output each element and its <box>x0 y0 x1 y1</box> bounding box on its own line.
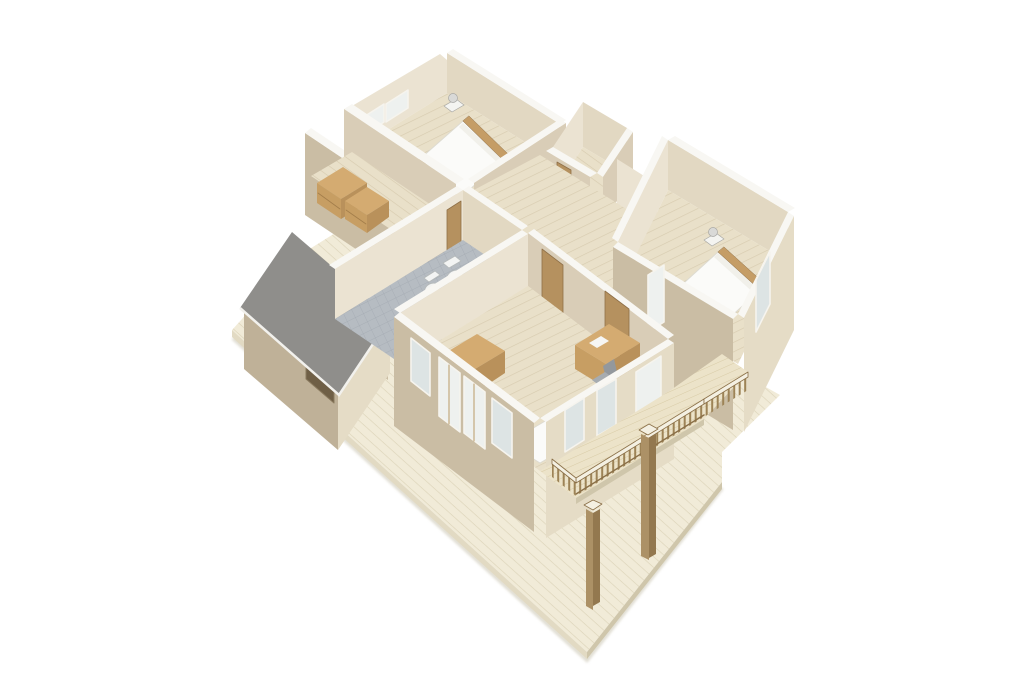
post-front <box>586 509 593 610</box>
post-side <box>649 434 656 558</box>
floor-plan-canvas <box>0 0 1024 696</box>
floor-plan-render <box>0 0 1024 696</box>
post-front <box>641 434 649 560</box>
table-lamp <box>449 94 458 103</box>
post-side <box>593 509 600 606</box>
porch-post <box>639 424 658 560</box>
porch-post <box>584 500 602 610</box>
table-lamp <box>709 228 718 237</box>
